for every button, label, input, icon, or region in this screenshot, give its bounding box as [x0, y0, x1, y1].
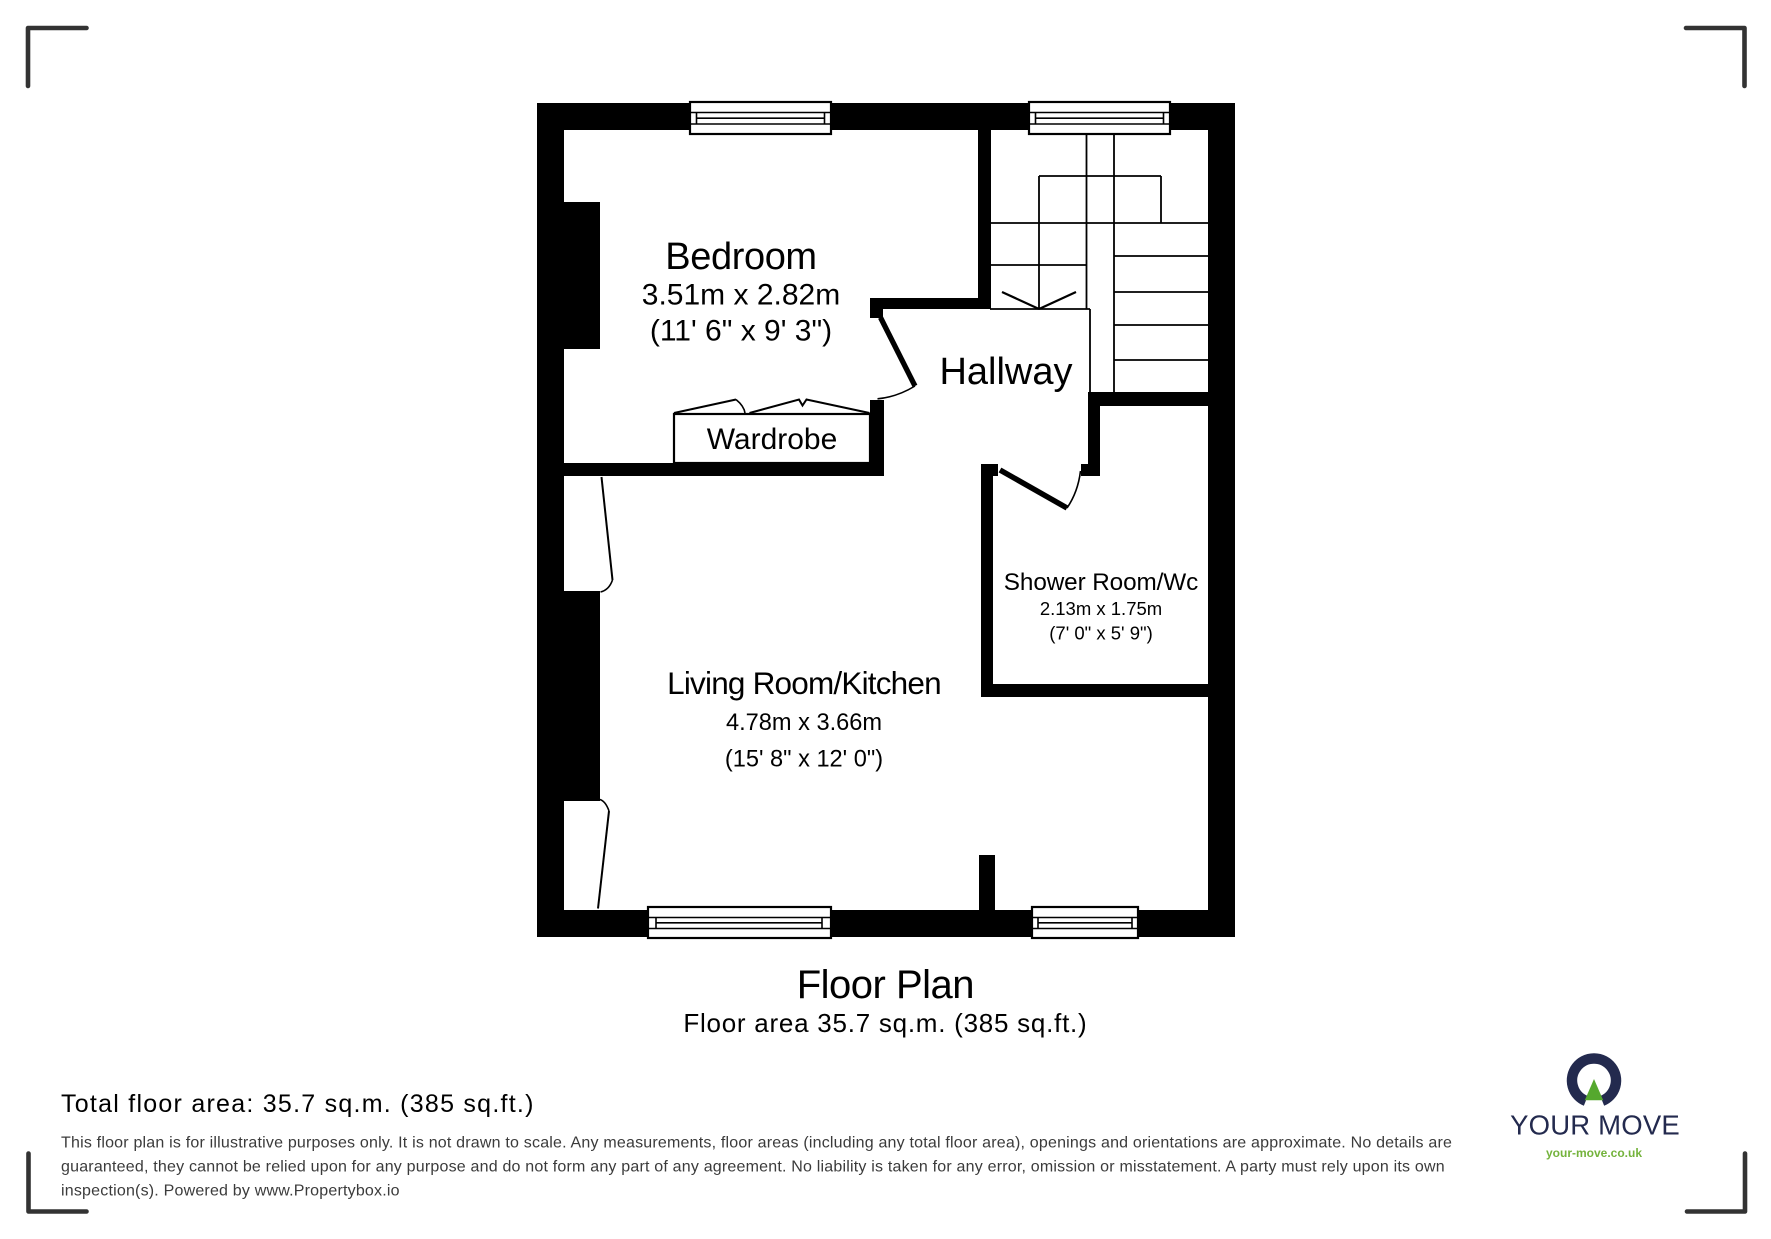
svg-text:Living Room/Kitchen: Living Room/Kitchen	[667, 665, 941, 701]
svg-text:This floor plan is for illustr: This floor plan is for illustrative purp…	[61, 1135, 1452, 1152]
svg-text:inspection(s). Powered by www.: inspection(s). Powered by www.Propertybo…	[61, 1183, 400, 1200]
svg-text:Wardrobe: Wardrobe	[707, 423, 838, 456]
svg-text:3.51m x 2.82m: 3.51m x 2.82m	[642, 279, 840, 312]
svg-text:(7' 0" x 5' 9"): (7' 0" x 5' 9")	[1049, 623, 1152, 644]
svg-text:(11' 6" x 9' 3"): (11' 6" x 9' 3")	[650, 315, 832, 348]
svg-text:Floor area 35.7 sq.m. (385 sq.: Floor area 35.7 sq.m. (385 sq.ft.)	[683, 1008, 1087, 1038]
svg-text:Floor Plan: Floor Plan	[797, 963, 974, 1007]
svg-text:(15' 8" x 12' 0"): (15' 8" x 12' 0")	[725, 747, 883, 773]
svg-text:your-move.co.uk: your-move.co.uk	[1546, 1146, 1642, 1160]
svg-text:guaranteed, they cannot be rel: guaranteed, they cannot be relied upon f…	[61, 1159, 1445, 1176]
svg-text:Total floor area: 35.7 sq.m. (: Total floor area: 35.7 sq.m. (385 sq.ft.…	[61, 1090, 535, 1118]
svg-text:2.13m x 1.75m: 2.13m x 1.75m	[1040, 598, 1162, 619]
svg-text:Bedroom: Bedroom	[665, 236, 816, 278]
svg-text:Shower Room/Wc: Shower Room/Wc	[1004, 569, 1198, 596]
svg-text:4.78m x 3.66m: 4.78m x 3.66m	[726, 710, 882, 736]
svg-text:Hallway: Hallway	[939, 351, 1072, 393]
svg-text:YOUR MOVE: YOUR MOVE	[1510, 1110, 1680, 1141]
